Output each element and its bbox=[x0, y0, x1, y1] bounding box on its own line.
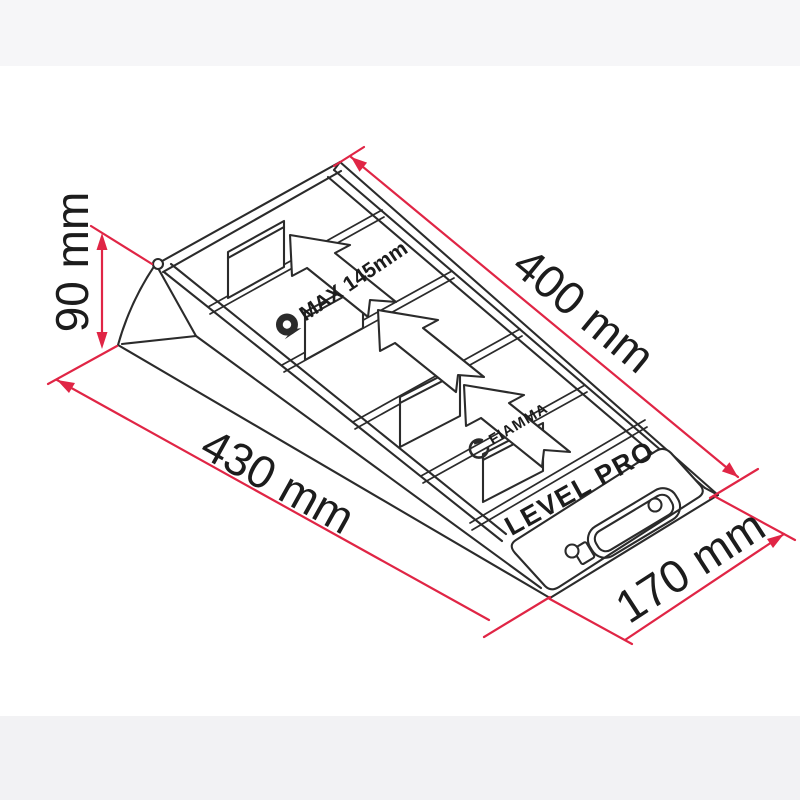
height-label: 90 mm bbox=[46, 192, 98, 333]
background-band-top bbox=[0, 0, 800, 66]
apex-corner-detail bbox=[153, 259, 163, 269]
background-band-bottom bbox=[0, 716, 800, 800]
leveling-ramp-dimension-diagram: MAX 145mm FIAMMA LEVEL PRO bbox=[0, 0, 800, 800]
diagram-stage: MAX 145mm FIAMMA LEVEL PRO bbox=[0, 0, 800, 800]
screw-hole bbox=[649, 499, 662, 512]
screw-hole bbox=[566, 545, 579, 558]
